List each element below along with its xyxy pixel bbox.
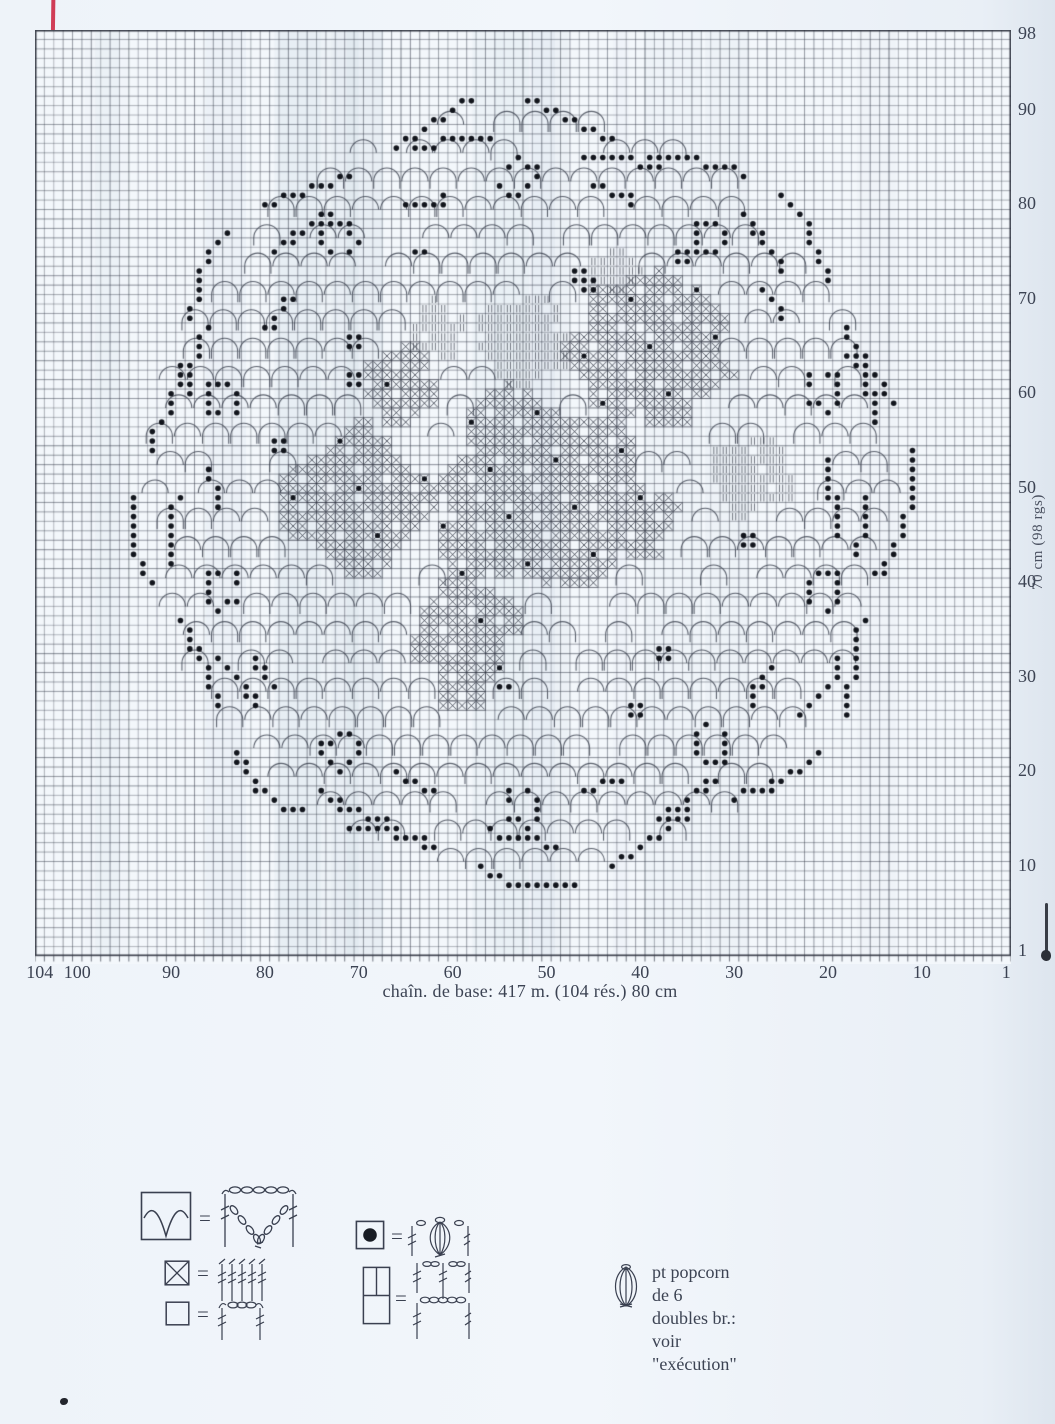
right-axis-label: 70	[1018, 289, 1036, 307]
legend-symbol-double-height-cell	[362, 1266, 391, 1325]
right-axis-label: 20	[1018, 761, 1036, 779]
equals-sign: =	[197, 1261, 209, 1286]
chart-caption: chaîn. de base: 417 m. (104 rés.) 80 cm	[0, 981, 1055, 1002]
bottom-axis-label: 10	[913, 963, 931, 981]
bottom-axis-label: 30	[725, 963, 743, 981]
popcorn-diagram-icon	[407, 1214, 473, 1260]
equals-sign: =	[197, 1302, 209, 1327]
side-note-rotated: 70 cm (98 rgs)	[1030, 415, 1047, 590]
right-axis-label: 98	[1018, 24, 1036, 42]
right-axis-label: 90	[1018, 100, 1036, 118]
popcorn-note-text: pt popcorn de 6 doubles br.: voir "exécu…	[652, 1261, 737, 1376]
equals-sign: =	[395, 1286, 407, 1311]
bottom-axis-label: 100	[64, 963, 91, 981]
popcorn-note-line1: pt popcorn de 6 doubles br.:	[652, 1261, 737, 1330]
bottom-axis-label: 104	[26, 963, 53, 981]
bottom-axis-label: 50	[537, 963, 555, 981]
bottom-axis-label: 70	[350, 963, 368, 981]
empty-mesh-diagram-icon	[214, 1297, 268, 1343]
legend-diagram-double-height	[409, 1257, 477, 1343]
empty-mesh-cell-icon	[165, 1301, 190, 1326]
right-axis-label: 80	[1018, 194, 1036, 212]
bottom-axis-label: 90	[162, 963, 180, 981]
double-height-diagram-icon	[409, 1257, 477, 1343]
legend-diagram-scallop-v	[217, 1183, 301, 1257]
crossed-x-cell-icon	[164, 1260, 190, 1286]
double-height-cell-icon	[362, 1266, 391, 1325]
bottom-axis-label: 20	[819, 963, 837, 981]
scallop-v-diagram-icon	[217, 1183, 301, 1257]
right-axis-label: 10	[1018, 856, 1036, 874]
popcorn-note-line2: voir "exécution"	[652, 1330, 737, 1376]
legend-diagram-empty-mesh	[214, 1297, 268, 1343]
legend-diagram-popcorn	[407, 1214, 473, 1260]
bottom-axis-label: 40	[631, 963, 649, 981]
page-edge-mark	[1045, 903, 1048, 955]
equals-sign: =	[199, 1206, 211, 1231]
popcorn-note-glyph	[608, 1263, 644, 1309]
page-edge-blob	[1041, 950, 1051, 961]
equals-sign: =	[391, 1224, 403, 1249]
bottom-axis-label: 60	[444, 963, 462, 981]
right-axis-label: 1	[1018, 941, 1027, 959]
right-axis-label: 60	[1018, 383, 1036, 401]
legend-symbol-scallop-v-cell	[140, 1191, 192, 1241]
bottom-axis-label: 1	[1002, 963, 1011, 981]
scallop-v-cell-icon	[140, 1191, 192, 1241]
popcorn-glyph-icon	[608, 1263, 644, 1309]
ink-blot	[60, 1398, 68, 1405]
popcorn-dot-cell-icon	[355, 1220, 385, 1250]
scanned-crochet-pattern-page: 989080706050403020101 104100908070605040…	[0, 0, 1055, 1424]
filet-crochet-chart-grid	[35, 30, 1011, 964]
legend-symbol-crossed-x-cell	[164, 1260, 190, 1286]
bottom-axis-label: 80	[256, 963, 274, 981]
right-axis-label: 30	[1018, 667, 1036, 685]
legend-symbol-empty-mesh-cell	[165, 1301, 190, 1326]
legend-symbol-popcorn-dot-cell	[355, 1220, 385, 1250]
